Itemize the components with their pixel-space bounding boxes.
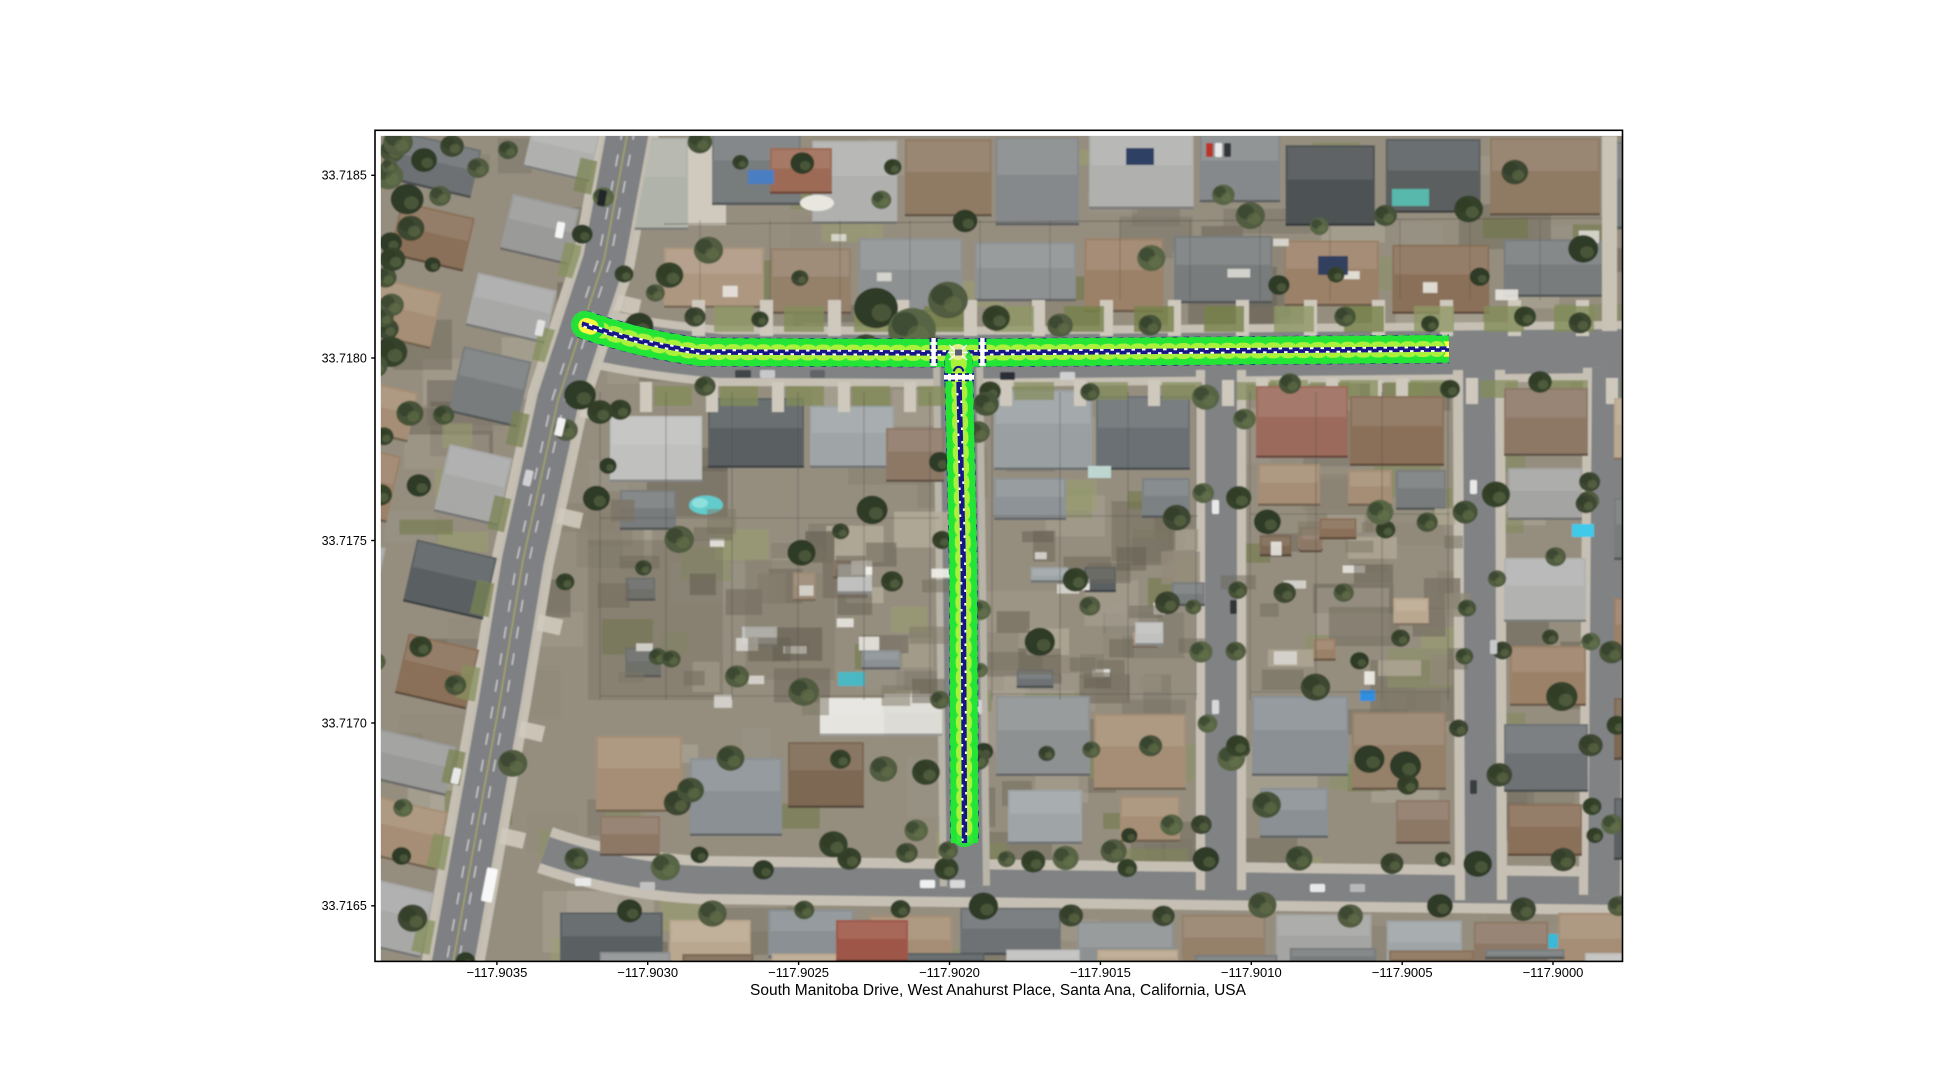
svg-text:33.7185: 33.7185	[322, 169, 367, 183]
svg-text:−117.9020: −117.9020	[919, 965, 980, 980]
svg-text:33.7165: 33.7165	[322, 899, 367, 913]
svg-text:−117.9030: −117.9030	[617, 965, 678, 980]
svg-text:33.7170: 33.7170	[322, 716, 367, 730]
svg-text:−117.9005: −117.9005	[1372, 965, 1433, 980]
svg-text:−117.9010: −117.9010	[1221, 965, 1282, 980]
svg-text:−117.9000: −117.9000	[1523, 965, 1584, 980]
svg-text:33.7175: 33.7175	[322, 534, 367, 548]
svg-text:33.7180: 33.7180	[322, 351, 367, 365]
svg-text:−117.9025: −117.9025	[768, 965, 829, 980]
svg-text:South Manitoba Drive, West Ana: South Manitoba Drive, West Anahurst Plac…	[750, 982, 1247, 999]
svg-text:−117.9035: −117.9035	[466, 965, 527, 980]
svg-text:−117.9015: −117.9015	[1070, 965, 1131, 980]
